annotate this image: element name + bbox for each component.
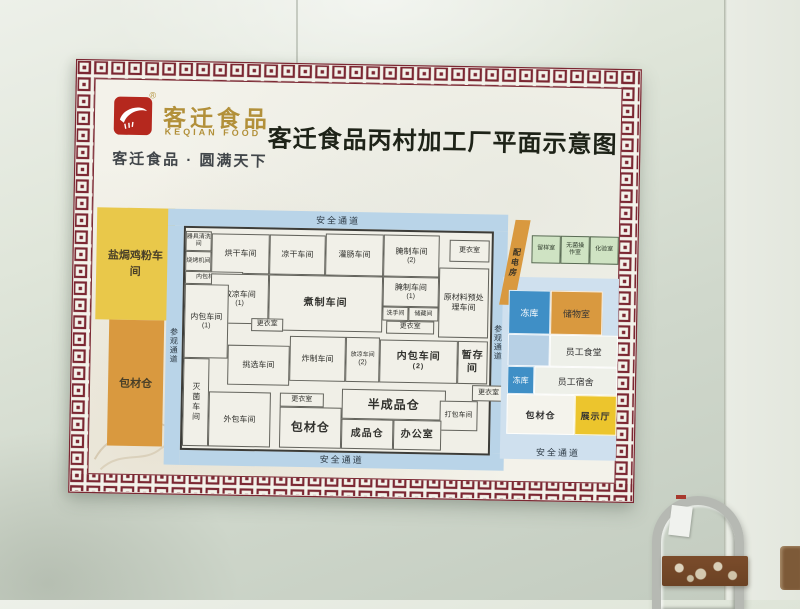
block-freezer-1: 冻库 bbox=[508, 290, 551, 335]
room-sample-retention: 留样室 bbox=[531, 235, 561, 264]
corridor-right-bottom: 安全通道 bbox=[500, 444, 616, 460]
sign-title: 客迁食品丙村加工厂平面示意图 bbox=[260, 118, 625, 160]
room-boiling: 煮制车间 bbox=[268, 274, 383, 332]
block-storage-room: 储物室 bbox=[550, 291, 603, 336]
room-changing-3: 更衣室 bbox=[251, 318, 283, 332]
room-semi-finished-warehouse: 半成品仓 bbox=[341, 389, 446, 421]
wall-seam bbox=[296, 0, 298, 66]
room-laboratory: 化验室 bbox=[589, 236, 619, 265]
room-outer-packing: 外包车间 bbox=[208, 391, 271, 447]
block-exhibition-hall: 展示厅 bbox=[574, 395, 617, 436]
room-inner-packing-2: 内包车间(2) bbox=[379, 339, 458, 383]
photo-of-factory-floorplan-sign: { "logo": { "brand_cn": "客迁食品", "brand_e… bbox=[0, 0, 800, 600]
room-frying: 炸制车间 bbox=[289, 336, 346, 382]
brand-name-en: KEQIAN FOOD bbox=[165, 126, 262, 138]
room-packing: 打包车间 bbox=[439, 401, 478, 432]
room-washroom: 洗手间 bbox=[382, 307, 408, 321]
room-changing-4: 更衣室 bbox=[280, 393, 324, 408]
room-finished-warehouse: 成品仓 bbox=[341, 419, 394, 450]
room-cooling-2: 放凉车间(2) bbox=[345, 337, 380, 383]
room-storage-small: 储藏间 bbox=[408, 307, 438, 322]
room-curing-1: 腌制车间(1) bbox=[383, 277, 440, 308]
room-drying: 烘干车间 bbox=[211, 233, 270, 274]
room-changing-mid: 更衣室 bbox=[386, 321, 434, 335]
block-packaging-warehouse-right: 包材仓 bbox=[506, 394, 575, 435]
brand-logo-icon bbox=[113, 96, 154, 137]
room-changing-top: 更衣室 bbox=[449, 240, 489, 263]
room-raw-material-pretreatment: 原材料预处理车间 bbox=[438, 268, 489, 339]
wall-corner-right bbox=[724, 0, 800, 600]
block-unlabeled bbox=[507, 334, 550, 367]
room-machine: 烧烤机间 bbox=[185, 251, 211, 271]
room-sausage-filling: 灌肠车间 bbox=[325, 233, 384, 276]
block-freezer-2: 冻库 bbox=[507, 366, 535, 394]
block-packaging-warehouse-left: 包材仓 bbox=[107, 320, 164, 447]
room-packaging-warehouse-center: 包材仓 bbox=[279, 407, 342, 449]
hand-truck-frame bbox=[652, 496, 744, 609]
red-label-sticker bbox=[676, 495, 686, 499]
room-aseptic-operation: 无菌操作室 bbox=[560, 236, 590, 265]
registered-mark: ® bbox=[149, 90, 156, 100]
rusty-object-edge bbox=[780, 546, 800, 590]
brand-tagline: 客迁食品 · 圆满天下 bbox=[112, 148, 268, 172]
room-utensil-washing: 器具清洗间 bbox=[186, 231, 212, 251]
room-picking: 挑选车间 bbox=[227, 345, 290, 386]
room-air-drying: 凉干车间 bbox=[269, 234, 326, 275]
hand-truck-rusty-plate bbox=[662, 556, 748, 586]
block-staff-canteen: 员工食堂 bbox=[549, 335, 618, 368]
block-salt-baked-chicken-workshop: 盐焗鸡粉车间 bbox=[95, 207, 175, 320]
room-inner-packing-1: 内包车间(1) bbox=[184, 284, 229, 359]
room-curing-2: 腌制车间(2) bbox=[383, 235, 440, 278]
block-staff-dormitory: 员工宿舍 bbox=[534, 366, 617, 396]
paper-note bbox=[668, 505, 692, 537]
floorplan-sign-board: ® 客迁食品 KEQIAN FOOD 客迁食品 · 圆满天下 客迁食品丙村加工厂… bbox=[68, 59, 642, 503]
room-temporary-storage: 暂存间 bbox=[457, 341, 488, 385]
floor-plan: 盐焗鸡粉车间 包材仓 安全通道 参观通道 参观通道 安全通道 器具清洗间 烧烤机… bbox=[86, 194, 621, 490]
room-office: 办公室 bbox=[393, 420, 442, 451]
room-sterilization: 灭菌车间 bbox=[182, 358, 210, 446]
